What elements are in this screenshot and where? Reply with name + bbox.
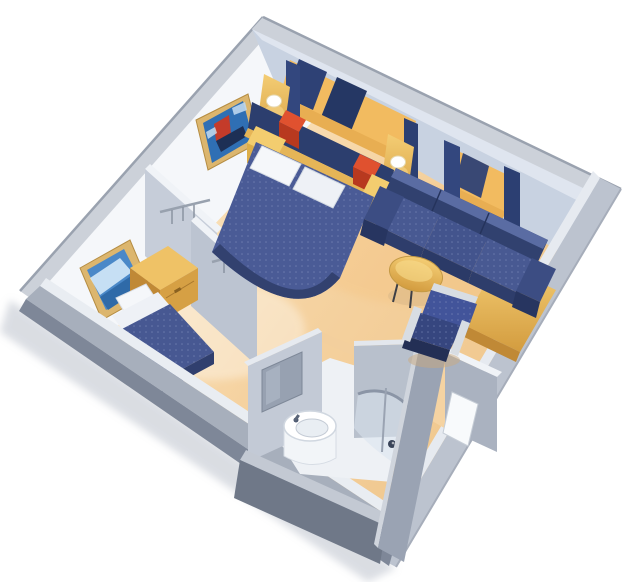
sink-bowl [296,419,328,437]
shower-knob-highlight [392,442,395,445]
sconce-light [267,95,282,107]
sconce-light [391,156,406,168]
stateroom-floorplan-page [0,0,640,582]
bathroom-mirror-highlight [266,365,280,405]
stateroom-floorplan-illustration [0,0,640,582]
bathroom-sink [284,411,336,465]
